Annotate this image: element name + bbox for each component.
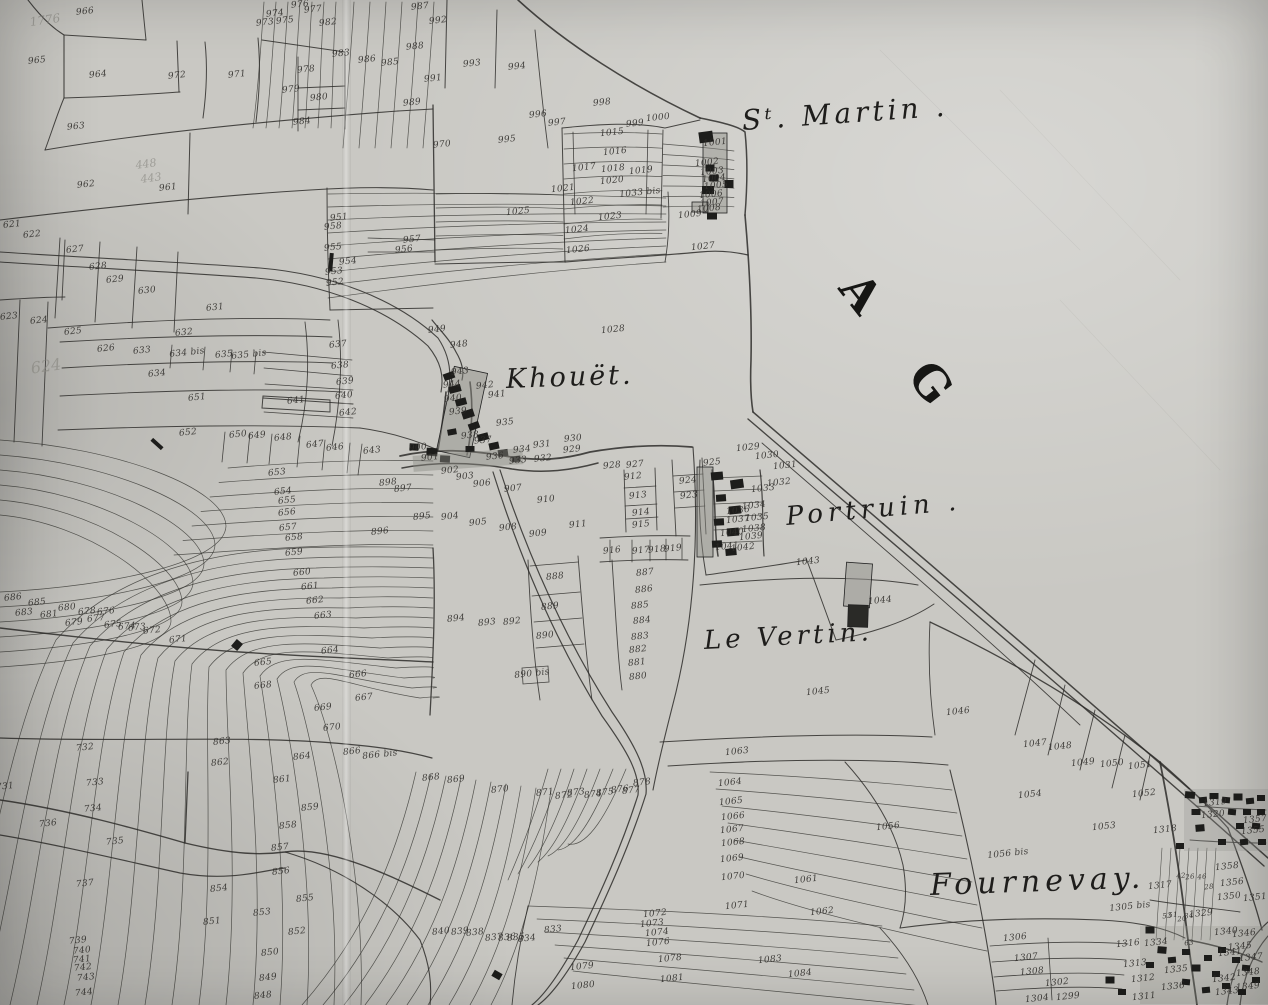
parcel-number: 646 <box>325 442 344 454</box>
parcel-number: 955 <box>323 242 342 254</box>
building <box>231 639 243 651</box>
parcel-number: 908 <box>498 522 517 534</box>
parcel-number: 935 <box>495 417 514 429</box>
parcel-number: 924 <box>678 475 697 487</box>
parcel-number: 910 <box>536 494 555 506</box>
parcel-number: 647 <box>305 439 324 451</box>
parcel-number: 883 <box>630 631 649 643</box>
parcel-number: 637 <box>328 339 347 351</box>
parcel-number: 984 <box>292 116 311 128</box>
parcel-number: 737 <box>75 878 94 890</box>
parcel-number: 940 <box>443 393 462 405</box>
parcel-number: 880 <box>628 671 647 683</box>
building <box>1106 977 1115 984</box>
parcel-number: 948 <box>449 339 468 351</box>
parcel-number: 660 <box>292 567 311 579</box>
parcel-number: 943 <box>450 366 469 378</box>
parcel-number: 894 <box>446 613 465 625</box>
parcel-number: 634 <box>147 368 166 380</box>
parcel-number: 895 <box>412 511 431 523</box>
parcel-number: 881 <box>627 657 646 669</box>
parcel-number: 888 <box>545 571 564 583</box>
parcel-number: 679 <box>64 617 83 629</box>
parcel-number: 985 <box>380 57 399 69</box>
building <box>1258 839 1266 845</box>
parcel-number: 907 <box>503 483 522 495</box>
parcel-number: 656 <box>277 507 296 519</box>
parcel-number: 861 <box>272 774 291 786</box>
parcel-number: 933 <box>508 455 527 467</box>
parcel-number: 977 <box>303 4 322 16</box>
parcel-number: 856 <box>271 866 290 878</box>
parcel-number: 913 <box>628 490 647 502</box>
parcel-number: 658 <box>284 532 303 544</box>
parcel-number: 897 <box>393 483 412 495</box>
parcel-number: 998 <box>592 97 611 109</box>
parcel-number: 624 <box>29 315 48 327</box>
parcel-number: 991 <box>423 73 442 85</box>
building <box>1118 989 1126 995</box>
parcel-number: 655 <box>277 495 296 507</box>
parcel-number: 652 <box>178 427 197 439</box>
parcel-number: 901 <box>420 452 439 464</box>
parcel-number: 639 <box>335 376 354 388</box>
parcel-number: 869 <box>446 774 465 786</box>
parcel-number: 686 <box>3 592 22 604</box>
parcel-number: 963 <box>66 121 85 133</box>
parcel-number: 668 <box>253 680 272 692</box>
parcel-number: 986 <box>357 54 376 66</box>
parcel-number: 970 <box>432 139 451 151</box>
building <box>716 494 726 502</box>
building <box>1185 791 1196 799</box>
building <box>1146 927 1155 934</box>
parcel-number: 626 <box>96 343 115 355</box>
parcel-number: 743 <box>76 972 95 984</box>
parcel-number: 971 <box>227 69 246 81</box>
building <box>1234 794 1243 801</box>
parcel-number: 904 <box>440 511 459 523</box>
parcel-number: 886 <box>634 584 653 596</box>
cadastral-map: Sᵗ. Martin . Khouët. Portruin . Le Verti… <box>0 0 1268 1005</box>
parcel-number: 736 <box>38 818 57 830</box>
parcel-number: 623 <box>0 311 19 323</box>
parcel-number: 889 <box>540 601 559 613</box>
parcel-number: 873 <box>566 787 585 799</box>
parcel-number: 900 <box>408 442 427 454</box>
parcel-number: 927 <box>625 459 644 471</box>
parcel-number: 631 <box>205 302 224 314</box>
parcel-number: 20 <box>1177 915 1187 924</box>
parcel-number: 893 <box>477 617 496 629</box>
parcel-number: 909 <box>528 528 547 540</box>
parcel-number: 905 <box>468 517 487 529</box>
parcel-number: 932 <box>533 453 552 465</box>
parcel-number: 995 <box>497 134 516 146</box>
parcel-number: 983 <box>331 48 350 60</box>
place-label-khouet: Khouët. <box>505 360 634 395</box>
parcel-number: 992 <box>428 15 447 27</box>
parcel-number: 651 <box>187 392 206 404</box>
parcel-number: 928 <box>602 460 621 472</box>
parcel-number: 840 <box>431 926 450 938</box>
parcel-number: 26 <box>1185 873 1195 882</box>
parcel-number: 914 <box>631 507 650 519</box>
parcel-number: 640 <box>334 390 353 402</box>
parcel-number: 667 <box>354 692 373 704</box>
parcel-number: 643 <box>362 445 381 457</box>
building <box>1218 839 1226 845</box>
parcel-number: 892 <box>502 616 521 628</box>
building <box>697 467 713 557</box>
parcel-number: 850 <box>260 947 279 959</box>
parcel-number: 680 <box>57 602 76 614</box>
parcel-number: 958 <box>323 221 342 233</box>
parcel-number: 632 <box>174 327 193 339</box>
parcel-number: 63 <box>1184 939 1194 948</box>
parcel-number: 896 <box>370 526 389 538</box>
parcel-number: 923 <box>679 490 698 502</box>
parcel-number: 870 <box>490 784 509 796</box>
parcel-number: 666 <box>348 669 367 681</box>
parcel-number: 734 <box>83 803 102 815</box>
parcel-number: 733 <box>85 777 104 789</box>
parcel-number: 46 <box>1197 873 1207 882</box>
parcel-number: 906 <box>472 478 491 490</box>
parcel-number: 854 <box>209 883 228 895</box>
parcel-number: 629 <box>105 274 124 286</box>
parcel-number: 670 <box>322 722 341 734</box>
building <box>1228 809 1236 816</box>
parcel-number: 931 <box>532 439 551 451</box>
building <box>1168 957 1176 964</box>
parcel-number: 862 <box>210 757 229 769</box>
parcel-number: 939 <box>448 406 467 418</box>
building <box>1243 809 1251 815</box>
parcel-number: 887 <box>635 567 654 579</box>
parcel-number: 925 <box>702 457 721 469</box>
parcel-number: 659 <box>284 547 303 559</box>
parcel-number: 911 <box>568 519 587 531</box>
parcel-number: 956 <box>394 244 413 256</box>
building <box>1195 824 1205 832</box>
parcel-boundaries-svg <box>0 0 1268 1005</box>
parcel-number: 638 <box>330 360 349 372</box>
parcel-number: 915 <box>631 519 650 531</box>
parcel-number: 28 <box>1204 883 1214 892</box>
parcel-number: 851 <box>202 916 221 928</box>
parcel-number: 944 <box>442 379 461 391</box>
parcel-number: 993 <box>462 58 481 70</box>
building <box>1246 798 1254 805</box>
parcel-number: 859 <box>300 802 319 814</box>
parcel-number: 996 <box>528 109 547 121</box>
parcel-number: 964 <box>88 69 107 81</box>
parcel-number: 912 <box>623 471 642 483</box>
building <box>1176 843 1184 849</box>
parcel-number: 855 <box>295 893 314 905</box>
parcel-number: 683 <box>14 607 33 619</box>
parcel-number: 890 <box>535 630 554 642</box>
parcel-number: 848 <box>253 990 272 1002</box>
parcel-number: 625 <box>63 326 82 338</box>
parcel-number: 972 <box>167 70 186 82</box>
building <box>1240 839 1248 846</box>
parcel-number: 627 <box>65 244 84 256</box>
parcel-number: 882 <box>628 644 647 656</box>
building <box>1182 949 1190 955</box>
parcel-number: 663 <box>313 610 332 622</box>
building <box>714 518 724 526</box>
parcel-number: 978 <box>296 64 315 76</box>
parcel-number: 929 <box>562 444 581 456</box>
parcel-number: 642 <box>338 407 357 419</box>
parcel-number: 622 <box>22 229 41 241</box>
parcel-number: 662 <box>305 595 324 607</box>
building <box>150 438 163 450</box>
building <box>1192 809 1201 815</box>
building <box>730 479 744 490</box>
parcel-number: 884 <box>632 615 651 627</box>
parcel-number: 858 <box>278 820 297 832</box>
building <box>711 471 724 480</box>
parcel-number: 994 <box>507 61 526 73</box>
parcel-number: 934 <box>512 444 531 456</box>
parcel-number: 961 <box>158 182 177 194</box>
parcel-number: 916 <box>602 545 621 557</box>
parcel-number: 857 <box>270 842 289 854</box>
parcel-number: 941 <box>487 389 506 401</box>
parcel-number: 949 <box>427 324 446 336</box>
parcel-number: 849 <box>258 972 277 984</box>
parcel-number: 980 <box>309 92 328 104</box>
parcel-number: 966 <box>75 6 94 18</box>
parcel-number: 878 <box>632 777 651 789</box>
parcel-number: 53 <box>1162 912 1172 921</box>
parcel-number: 641 <box>286 395 305 407</box>
parcel-number: 833 <box>543 924 562 936</box>
parcel-number: 937 <box>473 435 492 447</box>
parcel-number: 731 <box>0 781 15 793</box>
parcel-number: 653 <box>267 467 286 479</box>
parcel-number: 953 <box>324 266 343 278</box>
parcel-number: 633 <box>132 345 151 357</box>
parcel-number: 919 <box>663 543 682 555</box>
parcel-number: 676 <box>96 606 115 618</box>
parcel-number: 661 <box>300 581 319 593</box>
parcel-number: 735 <box>105 836 124 848</box>
parcel-number: 621 <box>2 219 21 231</box>
parcel-number: 669 <box>313 702 332 714</box>
parcel-number: 989 <box>402 97 421 109</box>
parcel-number: 997 <box>547 117 566 129</box>
parcel-number: 952 <box>325 277 344 289</box>
parcel-number: 863 <box>212 736 231 748</box>
parcel-number: 868 <box>421 772 440 784</box>
parcel-number: 999 <box>625 118 644 130</box>
parcel-number: 671 <box>168 634 187 646</box>
parcel-number: 866 <box>342 746 361 758</box>
parcel-number: 852 <box>287 926 306 938</box>
parcel-number: 853 <box>252 907 271 919</box>
parcel-number: 834 <box>517 933 536 945</box>
parcel-number: 871 <box>535 787 554 799</box>
parcel-number: 665 <box>253 657 272 669</box>
parcel-number: 650 <box>228 429 247 441</box>
building <box>1202 987 1210 994</box>
parcel-number: 988 <box>405 41 424 53</box>
parcel-number: 648 <box>273 432 292 444</box>
parcel-number: 732 <box>75 742 94 754</box>
parcel-number: 838 <box>465 927 484 939</box>
parcel-number: 630 <box>137 285 156 297</box>
parcel-number: 744 <box>74 987 93 999</box>
building <box>466 446 475 452</box>
parcel-number: 965 <box>27 55 46 67</box>
parcel-number: 649 <box>247 430 266 442</box>
building <box>1257 795 1265 801</box>
parcel-number: 962 <box>76 179 95 191</box>
parcel-number: 664 <box>320 645 339 657</box>
parcel-number: 982 <box>318 17 337 29</box>
parcel-number: 672 <box>142 625 161 637</box>
building <box>1192 965 1201 972</box>
building <box>491 970 502 981</box>
parcel-number: 885 <box>630 600 649 612</box>
parcel-number: 864 <box>292 751 311 763</box>
parcel-number: 681 <box>39 609 58 621</box>
parcel-number: 975 <box>275 15 294 27</box>
parcel-number: 987 <box>410 1 429 13</box>
parcel-number: 936 <box>485 451 504 463</box>
building <box>1204 955 1212 961</box>
parcel-number: 628 <box>88 261 107 273</box>
parcel-number: 979 <box>281 84 300 96</box>
